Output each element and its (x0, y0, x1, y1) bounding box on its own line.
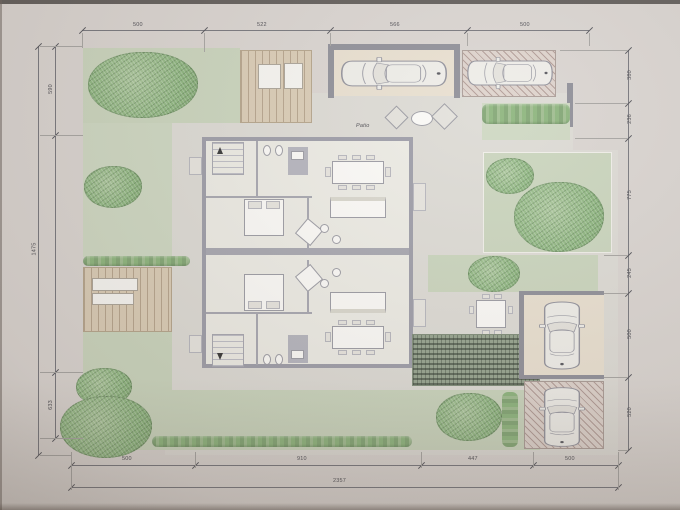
dim-label: 2357 (333, 478, 346, 484)
tree-large-right (514, 182, 604, 252)
extension-line (40, 135, 83, 136)
shrub-row-top-right (482, 104, 570, 124)
dimension-line-bottom-total (71, 487, 618, 488)
entry-step (189, 335, 202, 353)
dim-label: 633 (48, 400, 54, 410)
dining-chair (366, 185, 375, 190)
extension-line (195, 452, 196, 468)
extension-line (204, 33, 205, 52)
extension-line (40, 455, 71, 456)
dining-chair (385, 167, 391, 177)
photo-edge-top (0, 0, 680, 4)
tree-bottom-right (436, 393, 502, 441)
side-table (332, 235, 341, 244)
dim-label: 1475 (32, 242, 38, 255)
side-table (320, 279, 329, 288)
dim-label: 500 (122, 456, 132, 462)
dim-label: 500 (565, 456, 575, 462)
car-top-view (464, 55, 556, 91)
stair-direction-arrow (217, 147, 223, 154)
pillow (266, 201, 280, 209)
dim-label: 500 (133, 22, 143, 28)
dining-chair (338, 320, 347, 325)
dining-chair (366, 155, 375, 160)
photo-edge-left (0, 0, 2, 510)
interior-wall (256, 312, 258, 365)
toilet (263, 145, 271, 156)
dimension-line-bottom (71, 465, 618, 466)
car-top-view (337, 55, 451, 92)
tree-small-right (486, 158, 534, 194)
dining-chair (338, 350, 347, 355)
dim-label: 380 (627, 70, 633, 80)
dining-chair (385, 332, 391, 342)
dining-chair (366, 320, 375, 325)
car-top-view (536, 299, 588, 372)
extension-line (40, 372, 83, 373)
interior-wall (206, 312, 312, 314)
terrace-landing (413, 299, 426, 327)
carport2-wall-bottom (519, 375, 604, 379)
dining-chair (352, 320, 361, 325)
pillow (248, 201, 262, 209)
extension-line (71, 452, 72, 490)
photo-edge-bottom (0, 503, 680, 510)
extension-line (467, 33, 468, 46)
extension-line (40, 46, 83, 47)
entry-step (189, 157, 202, 175)
sun-lounger (258, 64, 281, 89)
outdoor-table (476, 300, 506, 328)
dim-label: 910 (297, 456, 307, 462)
tree-small-left (84, 166, 142, 208)
dim-label: 520 (627, 407, 633, 417)
extension-line (421, 452, 422, 468)
dim-label: 590 (48, 84, 54, 94)
staircase (212, 334, 244, 367)
tree-large-top-left (88, 52, 198, 118)
dim-label: 566 (390, 22, 400, 28)
dim-label: 447 (468, 456, 478, 462)
dimension-line-left-inner (55, 46, 56, 438)
dining-chair (366, 350, 375, 355)
extension-line (560, 50, 628, 51)
dimension-line-right (628, 50, 629, 450)
extension-line (618, 452, 619, 490)
sun-lounger (92, 293, 134, 305)
dim-label: 522 (257, 22, 267, 28)
dimension-line-top (82, 30, 589, 31)
kitchen-sink (291, 350, 304, 359)
dim-label: 245 (627, 268, 633, 278)
dining-chair (325, 167, 331, 177)
hedge-row-bottom (152, 436, 412, 447)
dim-label: 500 (520, 22, 530, 28)
car-top-view (536, 385, 588, 449)
dining-chair (325, 332, 331, 342)
site-plan-photo: Patio (0, 0, 680, 510)
outdoor-chair (482, 294, 490, 299)
terrace-landing (413, 183, 426, 211)
dining-chair (352, 185, 361, 190)
pillow (248, 301, 262, 309)
extension-line (575, 103, 628, 104)
outdoor-chair (494, 294, 502, 299)
sofa (330, 197, 386, 218)
extension-line (604, 377, 628, 378)
bidet (275, 145, 283, 156)
pillow (266, 301, 280, 309)
extension-line (40, 438, 83, 439)
tree-large-bottom-left (60, 396, 152, 458)
dining-chair (352, 155, 361, 160)
patio-table (411, 111, 433, 126)
bidet (275, 354, 283, 365)
outdoor-chair (469, 306, 474, 314)
sun-lounger (284, 63, 303, 89)
extension-line (533, 452, 534, 468)
dining-chair (338, 185, 347, 190)
dim-label: 236 (627, 114, 633, 124)
extension-line (604, 293, 628, 294)
dining-table (332, 326, 384, 349)
dim-label: 500 (627, 329, 633, 339)
carport-wall-right (454, 44, 460, 98)
sofa (330, 292, 386, 313)
extension-line (575, 138, 628, 139)
stair-direction-arrow (217, 353, 223, 360)
interior-wall (206, 196, 312, 198)
dim-label: 775 (627, 190, 633, 200)
hedge-row-left (83, 256, 190, 266)
tree-middle-right (468, 256, 520, 292)
extension-line (604, 255, 628, 256)
extension-line (589, 33, 590, 46)
interior-wall (256, 141, 258, 198)
extension-line (330, 33, 331, 46)
side-table (332, 268, 341, 277)
toilet (263, 354, 271, 365)
side-table (320, 224, 329, 233)
dining-chair (352, 350, 361, 355)
outdoor-chair (508, 306, 513, 314)
patio-label: Patio (356, 123, 370, 129)
kitchen-sink (291, 151, 304, 160)
sun-lounger (92, 278, 138, 291)
dining-chair (338, 155, 347, 160)
dining-table (332, 161, 384, 184)
extension-line (618, 450, 628, 451)
shrub-column-bottom-right (502, 392, 518, 447)
dimension-line-left-outer (38, 46, 39, 455)
